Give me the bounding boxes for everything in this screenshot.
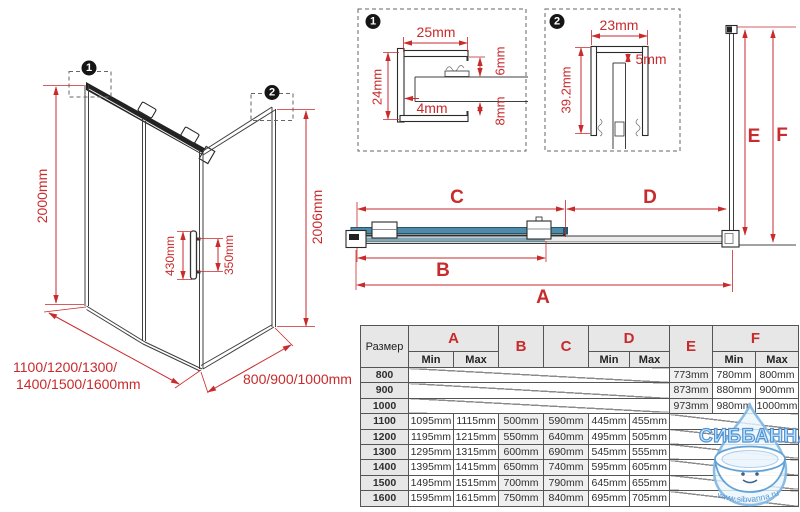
corner-block-plan: [722, 231, 739, 248]
detail-2-dim-gap: 5mm: [635, 51, 666, 67]
cell-b: 700mm: [499, 475, 544, 490]
cell-d-max: 655mm: [630, 475, 670, 490]
cell-c: 790mm: [544, 475, 589, 490]
cell-size: 1200: [361, 429, 409, 444]
dim-handle-right: 350mm: [222, 235, 236, 275]
side-panel-plan: [730, 33, 734, 231]
callout-badge-1-label: 1: [86, 62, 92, 74]
cell-d-min: 595mm: [589, 460, 630, 475]
cell-b: 500mm: [499, 414, 544, 429]
subheader-max: Max: [756, 352, 799, 368]
subheader-min: Min: [589, 352, 630, 368]
cell-d-max: 705mm: [630, 491, 670, 506]
side-panel-top-edge: [203, 107, 275, 155]
cell-b: 600mm: [499, 444, 544, 459]
front-right-edge: [200, 150, 204, 369]
cell-b: 550mm: [499, 429, 544, 444]
cell-a-min: 1195mm: [409, 429, 454, 444]
cell-size: 900: [361, 383, 409, 398]
cell-size: 1500: [361, 475, 409, 490]
detail-2-profile-section: 2 23mm 5mm 39.2mm: [545, 9, 680, 151]
table-header-row: Размер A B C D E F: [361, 326, 799, 352]
door-leading-edge: [143, 119, 146, 341]
cell-f-max: 900mm: [756, 383, 799, 398]
cell-e: 873mm: [670, 383, 713, 398]
cell-d-min: 695mm: [589, 491, 630, 506]
plan-dim-c: C: [450, 187, 464, 208]
side-panel-bottom-edge: [201, 325, 274, 370]
cell-size: 1100: [361, 414, 409, 429]
cell-size: 1000: [361, 398, 409, 413]
col-header-e: E: [670, 326, 713, 368]
table-row: 800 773mm 780mm 800mm: [361, 368, 799, 383]
cell-c: 690mm: [544, 444, 589, 459]
cell-a-max: 1115mm: [454, 414, 499, 429]
cell-a-min: 1495mm: [409, 475, 454, 490]
plan-dim-a: A: [536, 287, 550, 308]
dim-height-left: 2000mm: [34, 169, 50, 223]
detail-1-dim-right-bottom: 8mm: [493, 97, 508, 126]
cell-size: 1300: [361, 444, 409, 459]
cell-empty-strike: [409, 368, 670, 383]
cell-a-min: 1095mm: [409, 414, 454, 429]
plan-dim-b: B: [436, 260, 450, 281]
cell-d-max: 555mm: [630, 444, 670, 459]
enclosure-isometric-drawing: 1 2 2000mm 430mm 350mm 2006mm 1100/1200/…: [13, 61, 352, 394]
cell-c: 840mm: [544, 491, 589, 506]
subheader-max: Max: [630, 352, 670, 368]
plan-dim-d: D: [643, 187, 657, 208]
dim-front-width-line2: 1400/1500/1600mm: [16, 376, 141, 392]
cell-a-max: 1515mm: [454, 475, 499, 490]
roller-block-plan: [527, 221, 551, 239]
cell-size: 800: [361, 368, 409, 383]
dim-height-right: 2006mm: [309, 190, 325, 244]
cell-a-min: 1295mm: [409, 444, 454, 459]
dim-front-width-line1: 1100/1200/1300/: [13, 359, 117, 375]
col-header-d: D: [589, 326, 670, 352]
cell-c: 640mm: [544, 429, 589, 444]
door-handle: [191, 231, 197, 279]
col-header-a: A: [409, 326, 499, 352]
watermark-mascot: www.sibvanna.ru: [702, 402, 798, 510]
cell-a-max: 1315mm: [454, 444, 499, 459]
cell-c: 740mm: [544, 460, 589, 475]
subheader-max: Max: [454, 352, 499, 368]
cell-c: 590mm: [544, 414, 589, 429]
cell-b: 650mm: [499, 460, 544, 475]
cell-d-min: 495mm: [589, 429, 630, 444]
detail-1-badge-label: 1: [370, 16, 376, 28]
detail-1-dim-top: 25mm: [417, 24, 456, 40]
detail-1-dim-inner: 4mm: [416, 100, 447, 116]
detail-1-dim-left: 24mm: [370, 69, 385, 105]
cell-d-max: 455mm: [630, 414, 670, 429]
cell-a-max: 1615mm: [454, 491, 499, 506]
cell-d-min: 545mm: [589, 444, 630, 459]
glass-panel-section: [415, 77, 528, 102]
subheader-min: Min: [409, 352, 454, 368]
col-header-c: C: [544, 326, 589, 368]
subheader-min: Min: [713, 352, 756, 368]
fixed-panel-left-edge: [85, 85, 89, 306]
callout-badge-2-label: 2: [269, 87, 275, 99]
dim-side-width: 800/900/1000mm: [243, 371, 352, 387]
col-header-b: B: [499, 326, 544, 368]
detail-2-badge-label: 2: [554, 16, 560, 28]
dim-handle-left: 430mm: [163, 236, 177, 276]
cell-a-max: 1415mm: [454, 460, 499, 475]
plan-dim-e: E: [748, 126, 761, 147]
detail-1-dim-right-top: 6mm: [493, 47, 508, 76]
detail-1-profile-section: 1 25mm 24mm 4mm 6mm 8mm: [358, 9, 528, 151]
technical-drawing-page: 1 2 2000mm 430mm 350mm 2006mm 1100/1200/…: [0, 0, 800, 512]
cell-f-max: 800mm: [756, 368, 799, 383]
cell-d-min: 445mm: [589, 414, 630, 429]
cell-a-min: 1595mm: [409, 491, 454, 506]
detail-2-dim-left: 39.2mm: [559, 67, 574, 114]
cell-b: 750mm: [499, 491, 544, 506]
cell-d-max: 605mm: [630, 460, 670, 475]
cell-size: 1600: [361, 491, 409, 506]
cell-d-min: 645mm: [589, 475, 630, 490]
cell-size: 1400: [361, 460, 409, 475]
cell-empty-strike: [409, 383, 670, 398]
side-panel-far-edge: [272, 107, 276, 327]
cell-a-min: 1395mm: [409, 460, 454, 475]
cell-empty-strike: [409, 398, 670, 413]
watermark-brand-text: СИББАННА: [699, 426, 800, 448]
col-header-f: F: [713, 326, 799, 352]
cell-e: 773mm: [670, 368, 713, 383]
plan-dim-f: F: [776, 125, 788, 146]
table-row: 900 873mm 880mm 900mm: [361, 383, 799, 398]
roller-block-plan: [372, 222, 397, 238]
cell-a-max: 1215mm: [454, 429, 499, 444]
detail-2-dim-top: 23mm: [600, 17, 639, 33]
cell-f-min: 780mm: [713, 368, 756, 383]
col-header-size: Размер: [361, 326, 409, 368]
cell-f-min: 880mm: [713, 383, 756, 398]
cell-d-max: 505mm: [630, 429, 670, 444]
